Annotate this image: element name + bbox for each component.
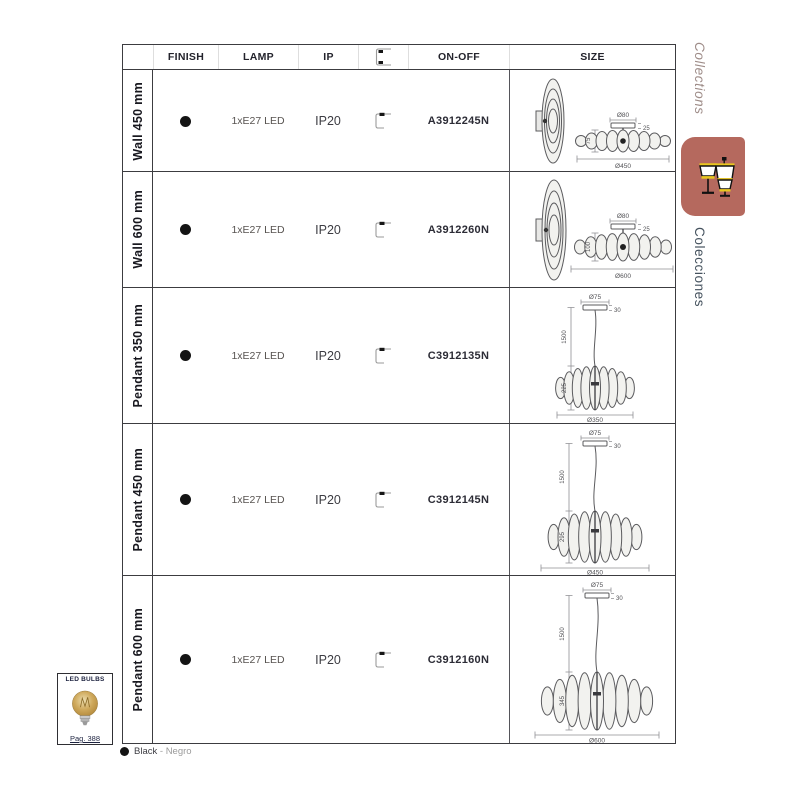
dim-body-h: 295	[560, 531, 566, 542]
dim-dia: Ø450	[587, 569, 603, 575]
dim-canopy-h: 30	[614, 308, 621, 314]
table-header-row: FINISH LAMP IP ON-OFF SIZE	[123, 45, 675, 69]
header-ip: IP	[298, 45, 358, 69]
catalog-page: FINISH LAMP IP ON-OFF SIZE Wall 450 mm 1…	[0, 0, 800, 800]
collections-tab[interactable]	[681, 137, 745, 216]
dim-canopy-h: 30	[614, 444, 621, 450]
size-diagram-wall-600: Ø80 25 100 Ø600	[511, 173, 675, 287]
header-switch	[358, 45, 408, 69]
dim-canopy-h: 25	[643, 126, 650, 132]
table-row: Wall 600 mm 1xE27 LED IP20 A3912260N	[123, 171, 675, 287]
lamp-spec: 1xE27 LED	[218, 424, 298, 575]
header-size: SIZE	[509, 45, 675, 69]
header-blank	[123, 45, 153, 69]
lamp-spec: 1xE27 LED	[218, 576, 298, 743]
dim-drop: 1500	[560, 626, 566, 640]
led-bulbs-page-ref: Pag. 388	[70, 734, 100, 743]
led-bulbs-box[interactable]: LED BULBS Pag. 388	[57, 673, 113, 745]
table-row: Pendant 600 mm 1xE27 LED IP20 C3912160N	[123, 575, 675, 743]
finish-swatch-black	[180, 224, 191, 235]
row-label: Wall 600 mm	[131, 190, 145, 269]
dim-canopy-dia: Ø80	[616, 213, 629, 220]
size-diagram-pendant-350: Ø75 30 1500 225 Ø350	[511, 289, 675, 423]
product-code: C3912145N	[408, 424, 509, 575]
ip-rating: IP20	[298, 70, 358, 172]
dim-drop: 1500	[562, 329, 568, 343]
product-code: C3912160N	[408, 576, 509, 743]
switch-icon	[370, 489, 396, 511]
led-bulb-icon	[67, 687, 103, 731]
header-finish: FINISH	[153, 45, 218, 69]
led-bulbs-title: LED BULBS	[66, 676, 105, 683]
table-row: Pendant 350 mm 1xE27 LED IP20 C3912135N	[123, 287, 675, 423]
product-code: C3912135N	[408, 288, 509, 423]
size-diagram-pendant-600: Ø75 30 1500 345 Ø600	[511, 577, 675, 743]
dim-canopy-dia: Ø75	[590, 582, 603, 589]
switch-icon	[370, 219, 396, 241]
dim-drop: 1500	[560, 469, 566, 483]
row-label: Pendant 450 mm	[131, 448, 145, 552]
finish-legend: Black - Negro	[120, 746, 192, 757]
dim-dia: Ø350	[587, 417, 603, 423]
dim-canopy-dia: Ø75	[588, 294, 601, 301]
size-diagram-wall-450: Ø80 25 75 Ø450	[511, 70, 675, 172]
dim-body-h: 225	[562, 382, 568, 393]
finish-swatch-black	[180, 350, 191, 361]
dim-dia: Ø450	[615, 163, 631, 170]
dim-body-h: 75	[586, 137, 592, 144]
dim-dia: Ø600	[615, 273, 631, 280]
dim-dia: Ø600	[589, 737, 605, 743]
dim-body-h: 100	[586, 241, 592, 252]
row-label: Wall 450 mm	[131, 82, 145, 161]
dim-canopy-h: 30	[616, 596, 623, 602]
table-row: Wall 450 mm 1xE27 LED IP20 A3912245N	[123, 69, 675, 171]
finish-swatch-black	[180, 494, 191, 505]
ip-rating: IP20	[298, 424, 358, 575]
lamp-spec: 1xE27 LED	[218, 70, 298, 172]
product-table: FINISH LAMP IP ON-OFF SIZE Wall 450 mm 1…	[122, 44, 676, 744]
ip-rating: IP20	[298, 288, 358, 423]
row-label: Pendant 350 mm	[131, 304, 145, 408]
ip-rating: IP20	[298, 576, 358, 743]
dim-canopy-dia: Ø75	[588, 430, 601, 437]
legend-dash: -	[160, 746, 163, 757]
table-row: Pendant 450 mm 1xE27 LED IP20 C3912145N	[123, 423, 675, 575]
switch-icon	[370, 649, 396, 671]
dim-canopy-h: 25	[643, 227, 650, 233]
dim-body-h: 345	[560, 695, 566, 706]
legend-black: Black	[134, 746, 157, 757]
switch-icon	[371, 46, 397, 68]
product-code: A3912260N	[408, 172, 509, 287]
size-diagram-pendant-450: Ø75 30 1500 295 Ø450	[511, 425, 675, 575]
finish-swatch-black	[180, 116, 191, 127]
dim-canopy-dia: Ø80	[616, 112, 629, 119]
lamp-spec: 1xE27 LED	[218, 288, 298, 423]
legend-negro: Negro	[166, 746, 192, 757]
switch-icon	[370, 110, 396, 132]
black-finish-dot	[120, 747, 129, 756]
lamps-icon	[690, 154, 736, 200]
header-lamp: LAMP	[218, 45, 298, 69]
product-code: A3912245N	[408, 70, 509, 172]
switch-icon	[370, 345, 396, 367]
collections-label-en: Collections	[692, 42, 707, 115]
ip-rating: IP20	[298, 172, 358, 287]
header-on-off: ON-OFF	[408, 45, 509, 69]
finish-swatch-black	[180, 654, 191, 665]
row-label: Pendant 600 mm	[131, 608, 145, 712]
lamp-spec: 1xE27 LED	[218, 172, 298, 287]
collections-label-es: Colecciones	[692, 227, 707, 307]
